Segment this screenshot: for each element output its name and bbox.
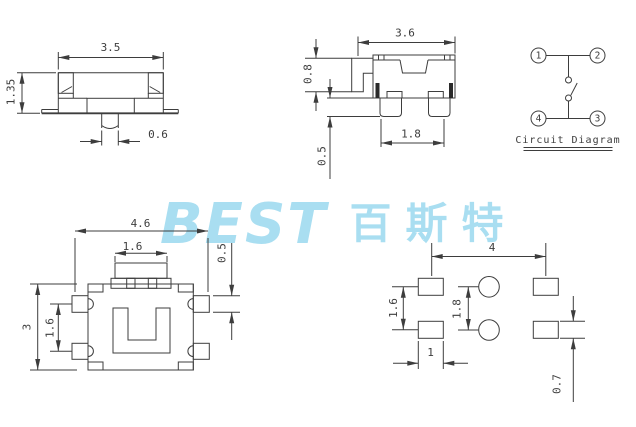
side-leg-height-dim: 0.5 bbox=[316, 146, 329, 166]
side-flange-height-dim: 0.8 bbox=[302, 64, 315, 84]
front-body bbox=[58, 73, 163, 114]
front-width-dim: 3.5 bbox=[101, 41, 121, 54]
fp-pad-width-dim: 1 bbox=[427, 346, 434, 359]
side-leg-pitch-dim: 1.8 bbox=[401, 128, 421, 141]
top-pad-right-upper bbox=[193, 296, 209, 313]
front-stem-dim: 0.6 bbox=[148, 128, 168, 141]
top-pad-left-lower bbox=[72, 343, 88, 359]
footprint-view: 4 1.6 1.8 1 0.7 bbox=[387, 241, 585, 402]
fp-pad-right-upper bbox=[533, 278, 558, 295]
top-overall-width-dim: 4.6 bbox=[131, 217, 151, 230]
front-actuator bbox=[87, 98, 134, 113]
front-stem bbox=[102, 113, 119, 128]
fp-pad-span-dim: 4 bbox=[489, 241, 496, 254]
top-button-width-dim: 1.6 bbox=[123, 240, 143, 253]
side-contact-bar-left bbox=[376, 83, 380, 98]
top-collar bbox=[111, 278, 171, 288]
fp-hole-pitch-dim: 1.8 bbox=[451, 299, 464, 319]
side-leg-left bbox=[380, 98, 402, 117]
side-view: 3.6 0.8 0.5 bbox=[302, 27, 456, 180]
side-flange bbox=[352, 58, 373, 91]
top-pad-right-lower bbox=[193, 343, 209, 359]
fp-pad-pitch-dim: 1.6 bbox=[387, 298, 400, 318]
tact-switch-drawing-sheet: BEST 百斯特 3.5 1.35 bbox=[0, 0, 636, 427]
front-view: 3.5 1.35 0.6 bbox=[5, 41, 179, 146]
side-leg-right bbox=[429, 98, 451, 117]
side-width-dim: 3.6 bbox=[395, 27, 415, 40]
switch-contact-arm bbox=[571, 83, 577, 95]
fp-pad-right-lower bbox=[533, 321, 558, 338]
fp-pad-height-dim: 0.7 bbox=[551, 374, 564, 394]
pin-1-label: 1 bbox=[536, 51, 542, 62]
fp-pad-left-upper bbox=[418, 278, 443, 295]
circuit-diagram: 1 2 4 3 Circuit Diagram bbox=[515, 48, 620, 151]
side-contact-bar-right bbox=[449, 83, 453, 98]
front-height-dim: 1.35 bbox=[5, 79, 18, 106]
pin-2-label: 2 bbox=[595, 51, 601, 62]
top-body bbox=[88, 284, 193, 370]
fp-hole-upper bbox=[479, 277, 500, 298]
fp-hole-lower bbox=[479, 320, 500, 341]
top-pad-left-upper bbox=[72, 296, 88, 313]
drawing-canvas: 3.5 1.35 0.6 bbox=[0, 0, 636, 427]
top-button bbox=[115, 263, 167, 278]
top-pad-height-dim: 0.5 bbox=[216, 243, 229, 263]
pin-3-label: 3 bbox=[595, 114, 601, 125]
top-u-channel bbox=[113, 308, 170, 353]
circuit-diagram-title: Circuit Diagram bbox=[515, 135, 620, 146]
fp-pad-left-lower bbox=[418, 321, 443, 338]
pin-4-label: 4 bbox=[536, 114, 542, 125]
top-body-height-dim: 3 bbox=[21, 324, 34, 331]
top-pad-pitch-dim: 1.6 bbox=[44, 318, 57, 338]
top-view: 4.6 1.6 bbox=[21, 217, 241, 370]
